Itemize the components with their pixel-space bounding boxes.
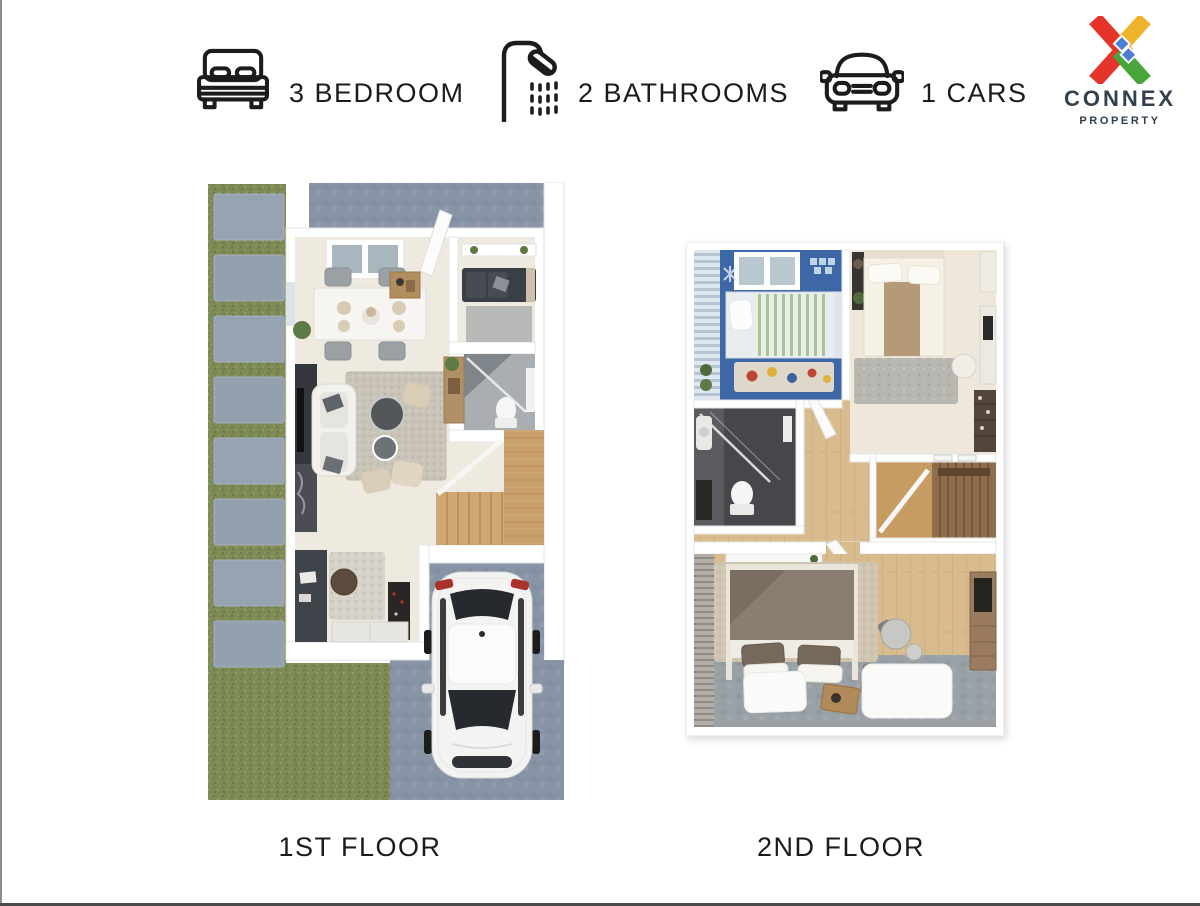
- white-rug-large: [862, 664, 952, 718]
- bathroom-count-label: 2 BATHROOMS: [578, 78, 789, 109]
- staircase-2f: [874, 462, 996, 538]
- connex-x-mark-icon: [1083, 16, 1157, 84]
- toilet-2f: [731, 481, 753, 507]
- rear-patio: [309, 183, 545, 228]
- coffee-table: [370, 397, 404, 431]
- wardrobe: [974, 390, 996, 452]
- accent-chair: [881, 619, 911, 649]
- first-floor-caption: 1ST FLOOR: [230, 832, 490, 863]
- connex-property-logo: CONNEX PROPERTY: [1060, 16, 1180, 127]
- page-left-border: [0, 0, 2, 906]
- guest-desk-chair: [952, 354, 976, 378]
- downstairs-bathroom: [464, 354, 535, 430]
- second-floor-caption: 2ND FLOOR: [711, 832, 971, 863]
- desk-chair: [331, 569, 357, 595]
- shower-icon: [498, 36, 562, 122]
- kids-bedroom: [694, 250, 844, 400]
- right-boundary-wall: [544, 182, 564, 663]
- floorplan-brochure: { "header": { "features": [ { "icon": "b…: [0, 0, 1200, 906]
- first-floor-plan: [194, 182, 566, 802]
- parked-car: [422, 572, 542, 778]
- built-in-drawers: [934, 455, 952, 461]
- bedroom-count-label: 3 BEDROOM: [289, 78, 465, 109]
- white-rug-small: [743, 671, 806, 713]
- upstairs-bathroom: [694, 408, 796, 526]
- second-floor-plan: [686, 242, 1008, 742]
- logo-brand-text: CONNEX: [1060, 86, 1180, 112]
- entry-console-table: [390, 272, 420, 298]
- car-count-label: 1 CARS: [921, 78, 1028, 109]
- guest-bedroom: [850, 250, 996, 454]
- master-bedroom: [694, 554, 996, 727]
- bed-icon: [196, 48, 270, 114]
- car-icon: [820, 50, 904, 114]
- vanity: [526, 368, 535, 412]
- logo-tagline-text: PROPERTY: [1060, 115, 1180, 127]
